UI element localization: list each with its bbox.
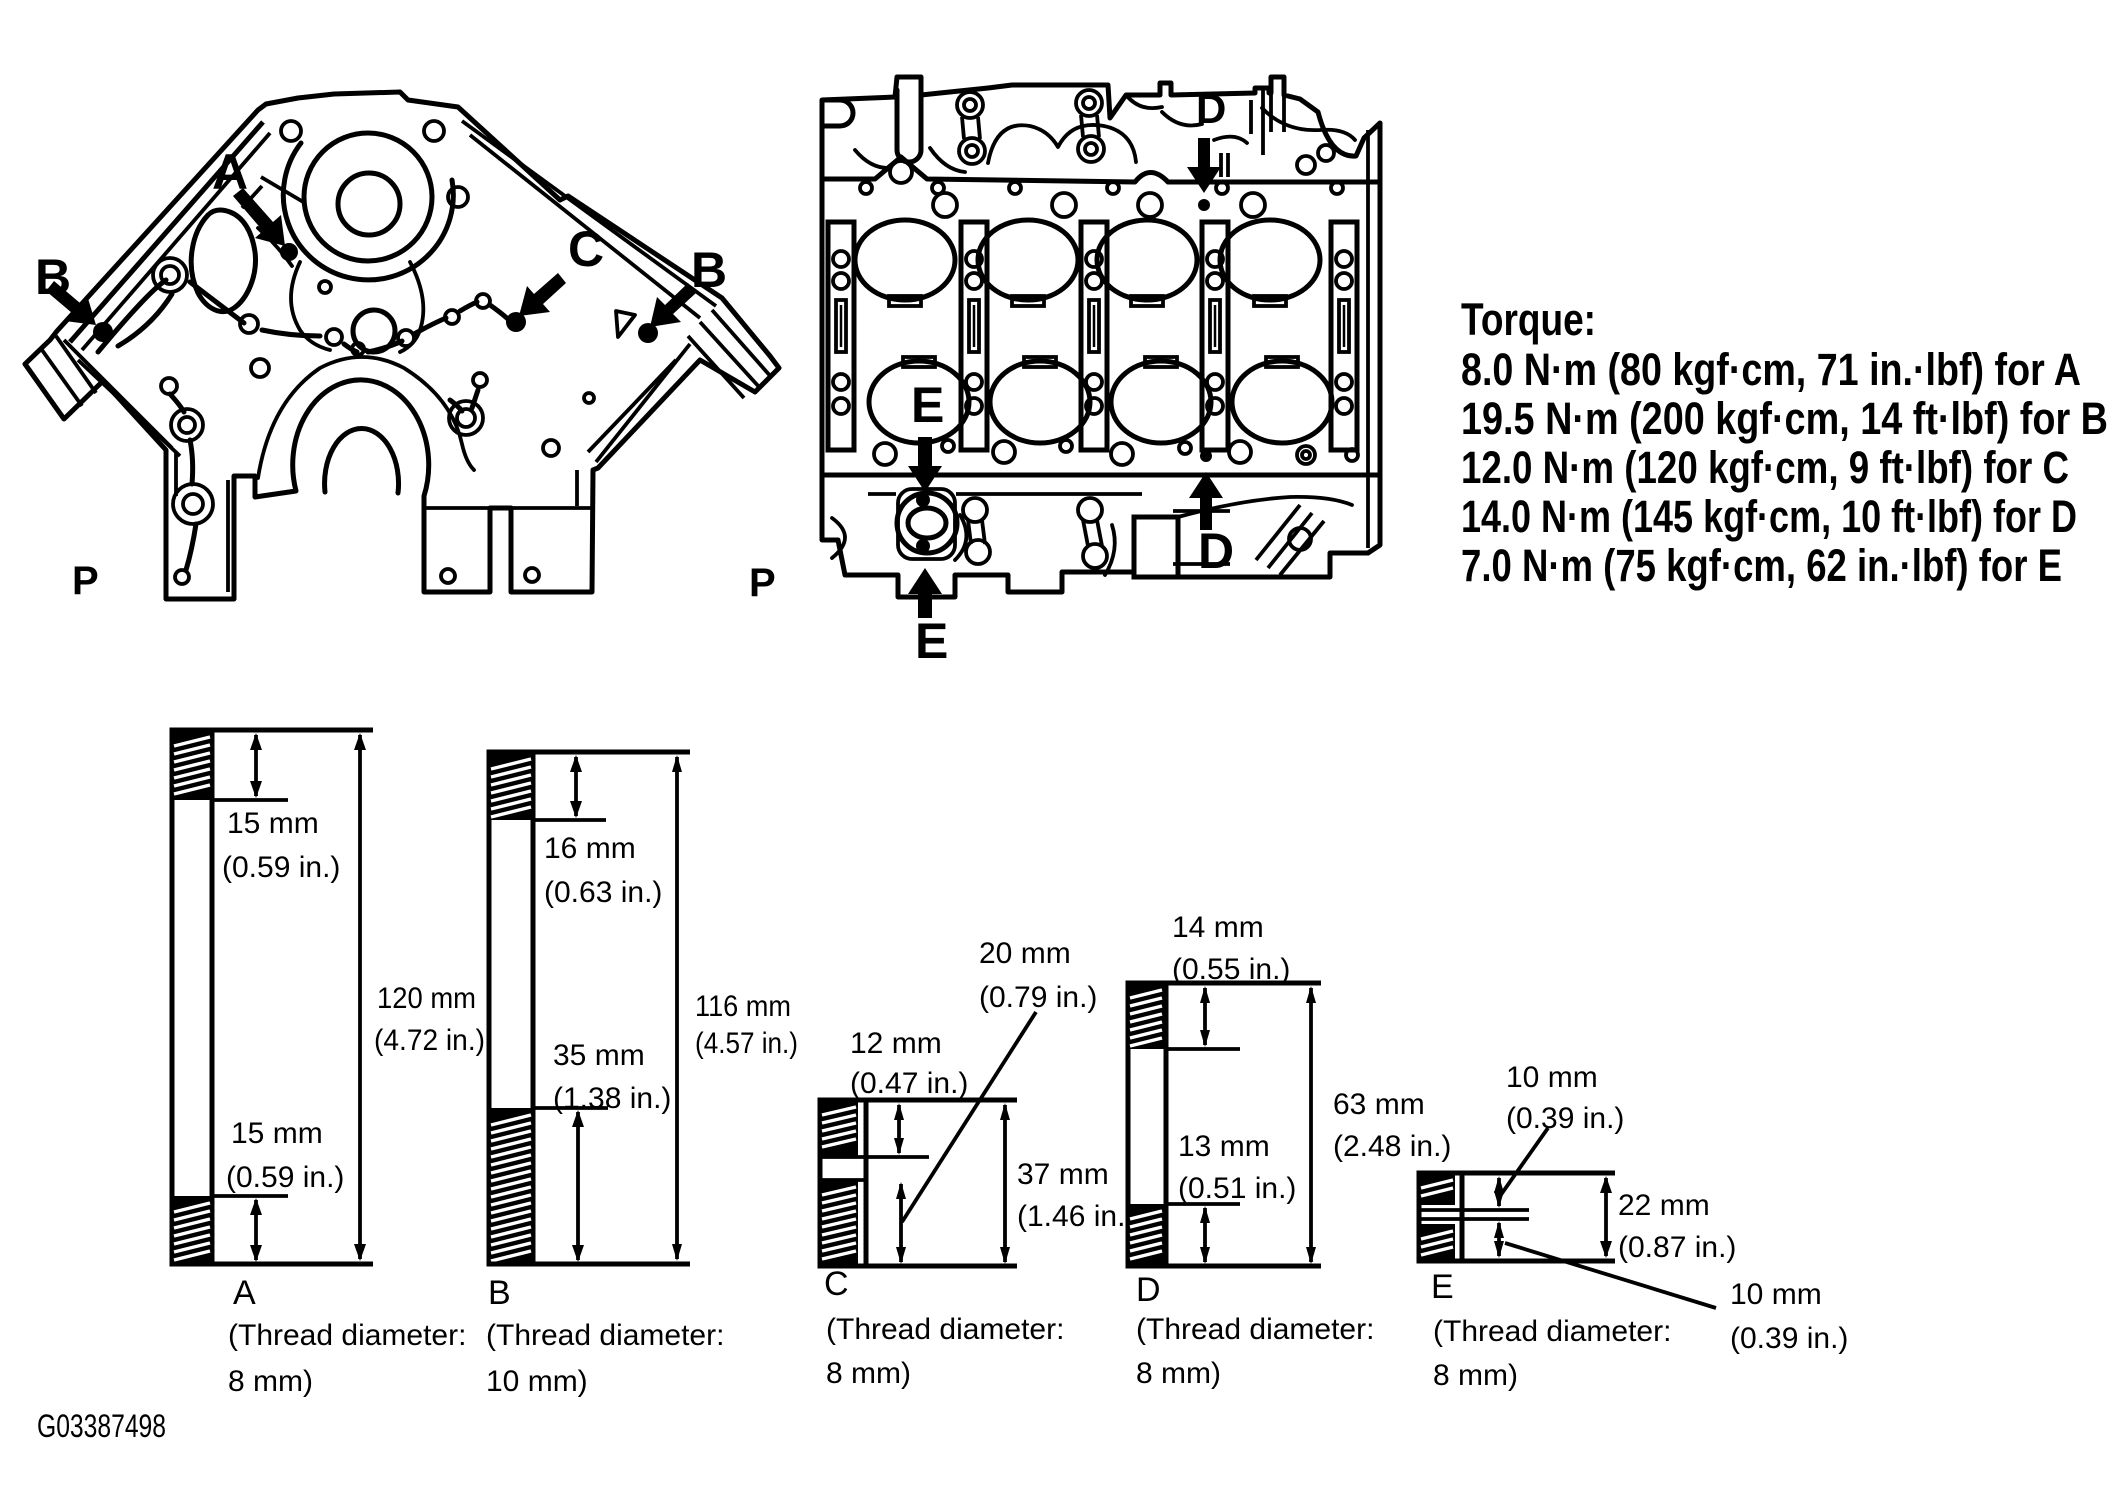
- svg-text:(1.46 in.): (1.46 in.): [1017, 1200, 1135, 1233]
- svg-text:(Thread diameter:: (Thread diameter:: [228, 1319, 466, 1352]
- svg-text:20 mm: 20 mm: [979, 937, 1071, 970]
- svg-text:G03387498: G03387498: [37, 1408, 166, 1444]
- svg-text:P: P: [72, 559, 99, 603]
- svg-text:C: C: [824, 1265, 849, 1303]
- svg-text:(0.59 in.): (0.59 in.): [226, 1161, 344, 1194]
- svg-text:P: P: [749, 561, 776, 605]
- svg-text:(0.39 in.): (0.39 in.): [1730, 1322, 1848, 1355]
- svg-text:(2.48 in.): (2.48 in.): [1333, 1130, 1451, 1163]
- svg-text:10 mm: 10 mm: [1506, 1061, 1598, 1094]
- svg-text:E: E: [911, 377, 944, 433]
- svg-text:(0.63 in.): (0.63 in.): [544, 876, 662, 909]
- svg-text:(4.57 in.): (4.57 in.): [695, 1027, 798, 1060]
- svg-text:(0.51 in.): (0.51 in.): [1178, 1172, 1296, 1205]
- svg-text:(0.39 in.): (0.39 in.): [1506, 1102, 1624, 1135]
- svg-text:8 mm): 8 mm): [826, 1357, 911, 1390]
- svg-text:(0.55 in.): (0.55 in.): [1172, 953, 1290, 986]
- svg-text:E: E: [915, 613, 948, 669]
- svg-text:12 mm: 12 mm: [850, 1027, 942, 1060]
- svg-text:Torque:: Torque:: [1461, 294, 1596, 345]
- svg-text:(0.59 in.): (0.59 in.): [222, 851, 340, 884]
- svg-text:D: D: [1136, 1271, 1161, 1309]
- svg-text:63 mm: 63 mm: [1333, 1088, 1425, 1121]
- svg-text:7.0 N·m (75 kgf·cm, 62 in.·lbf: 7.0 N·m (75 kgf·cm, 62 in.·lbf) for E: [1461, 540, 2062, 591]
- svg-text:(Thread diameter:: (Thread diameter:: [1136, 1313, 1374, 1346]
- svg-text:C: C: [568, 221, 604, 277]
- svg-text:19.5 N·m (200 kgf·cm, 14 ft·lb: 19.5 N·m (200 kgf·cm, 14 ft·lbf) for B: [1461, 393, 2108, 444]
- svg-text:14 mm: 14 mm: [1172, 911, 1264, 944]
- svg-text:(Thread diameter:: (Thread diameter:: [1433, 1315, 1671, 1348]
- svg-text:(Thread diameter:: (Thread diameter:: [826, 1313, 1064, 1346]
- svg-text:22 mm: 22 mm: [1618, 1189, 1710, 1222]
- svg-text:E: E: [1431, 1268, 1454, 1306]
- svg-text:15 mm: 15 mm: [227, 807, 319, 840]
- svg-text:B: B: [488, 1274, 511, 1312]
- svg-text:D: D: [1196, 85, 1226, 132]
- svg-text:8 mm): 8 mm): [1433, 1359, 1518, 1392]
- svg-text:12.0 N·m (120 kgf·cm, 9 ft·lbf: 12.0 N·m (120 kgf·cm, 9 ft·lbf) for C: [1461, 442, 2069, 493]
- svg-text:A: A: [233, 1274, 256, 1312]
- svg-text:16 mm: 16 mm: [544, 832, 636, 865]
- svg-text:(4.72 in.): (4.72 in.): [374, 1024, 485, 1057]
- svg-text:8.0 N·m (80 kgf·cm, 71 in.·lbf: 8.0 N·m (80 kgf·cm, 71 in.·lbf) for A: [1461, 344, 2081, 395]
- svg-text:10 mm): 10 mm): [486, 1365, 588, 1398]
- svg-text:13 mm: 13 mm: [1178, 1130, 1270, 1163]
- svg-text:14.0 N·m (145 kgf·cm, 10 ft·lb: 14.0 N·m (145 kgf·cm, 10 ft·lbf) for D: [1461, 491, 2077, 542]
- svg-text:(0.47 in.): (0.47 in.): [850, 1067, 968, 1100]
- svg-text:120 mm: 120 mm: [377, 982, 476, 1015]
- svg-text:116 mm: 116 mm: [695, 990, 791, 1023]
- svg-text:8 mm): 8 mm): [1136, 1357, 1221, 1390]
- svg-text:(0.79 in.): (0.79 in.): [979, 981, 1097, 1014]
- svg-text:35 mm: 35 mm: [553, 1039, 645, 1072]
- svg-text:8 mm): 8 mm): [228, 1365, 313, 1398]
- svg-text:B: B: [691, 242, 727, 298]
- svg-text:(0.87 in.): (0.87 in.): [1618, 1231, 1736, 1264]
- svg-text:37 mm: 37 mm: [1017, 1158, 1109, 1191]
- svg-text:D: D: [1198, 523, 1234, 579]
- svg-text:(1.38 in.): (1.38 in.): [553, 1082, 671, 1115]
- svg-text:15 mm: 15 mm: [231, 1117, 323, 1150]
- svg-text:(Thread diameter:: (Thread diameter:: [486, 1319, 724, 1352]
- svg-text:10 mm: 10 mm: [1730, 1278, 1822, 1311]
